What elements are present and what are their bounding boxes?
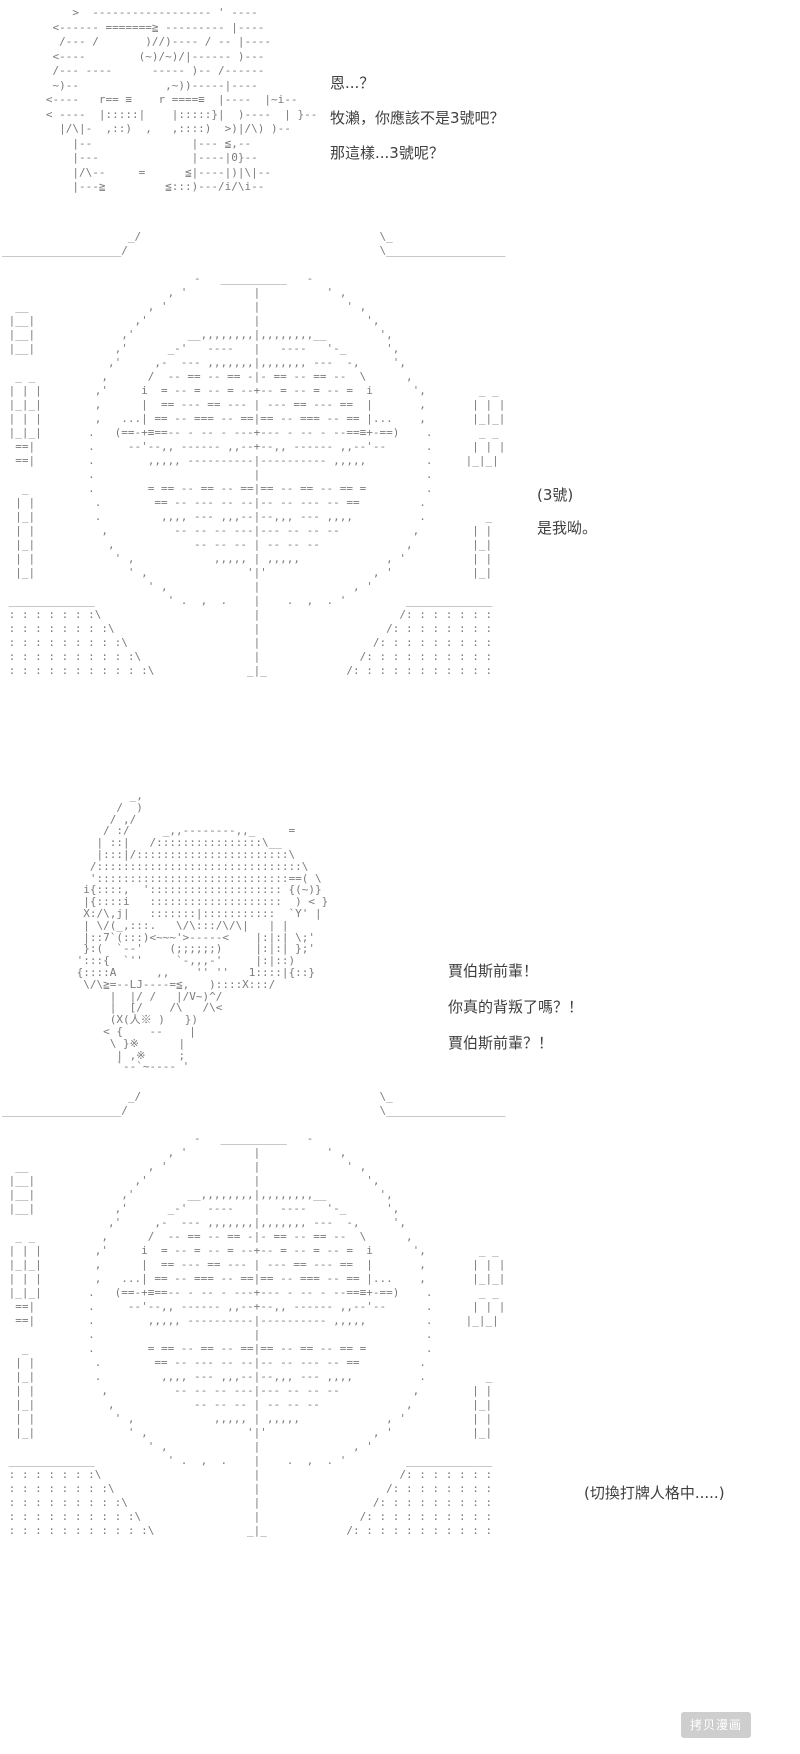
dialogue-block-4: (切換打牌人格中.....)	[584, 1482, 725, 1504]
dialogue-line: 那這樣...3號呢？	[330, 136, 505, 171]
dialogue-block-1: 恩...？ 牧瀨，你應該不是3號吧？ 那這樣...3號呢？	[330, 66, 505, 171]
site-watermark-badge: 拷贝漫画	[681, 1712, 751, 1738]
ascii-art-mask-circle-panel-1: _/ \_ __________________/ \_____________…	[2, 230, 505, 678]
dialogue-line: 恩...？	[330, 66, 505, 101]
ascii-art-mask-circle-panel-2: _/ \_ __________________/ \_____________…	[2, 1090, 505, 1538]
dialogue-line: (3號)	[537, 479, 597, 512]
comic-page: > ------------------ ' ---- <------ ====…	[0, 0, 800, 1754]
dialogue-line: 牧瀨，你應該不是3號吧？	[330, 101, 505, 136]
dialogue-line: 賈伯斯前輩！	[448, 953, 583, 989]
dialogue-block-2: (3號) 是我呦。	[537, 479, 597, 545]
dialogue-line: 是我呦。	[537, 512, 597, 545]
dialogue-line: 你真的背叛了嗎？！	[448, 989, 583, 1025]
dialogue-line: 賈伯斯前輩？！	[448, 1025, 583, 1061]
dialogue-line: (切換打牌人格中.....)	[584, 1482, 725, 1504]
ascii-art-top-character: > ------------------ ' ---- <------ ====…	[26, 6, 317, 195]
dialogue-block-3: 賈伯斯前輩！ 你真的背叛了嗎？！ 賈伯斯前輩？！	[448, 953, 583, 1061]
ascii-art-jobs-character: _, / ) / ,/ / :/ _,,--------,,_ = | ::| …	[70, 790, 328, 1073]
